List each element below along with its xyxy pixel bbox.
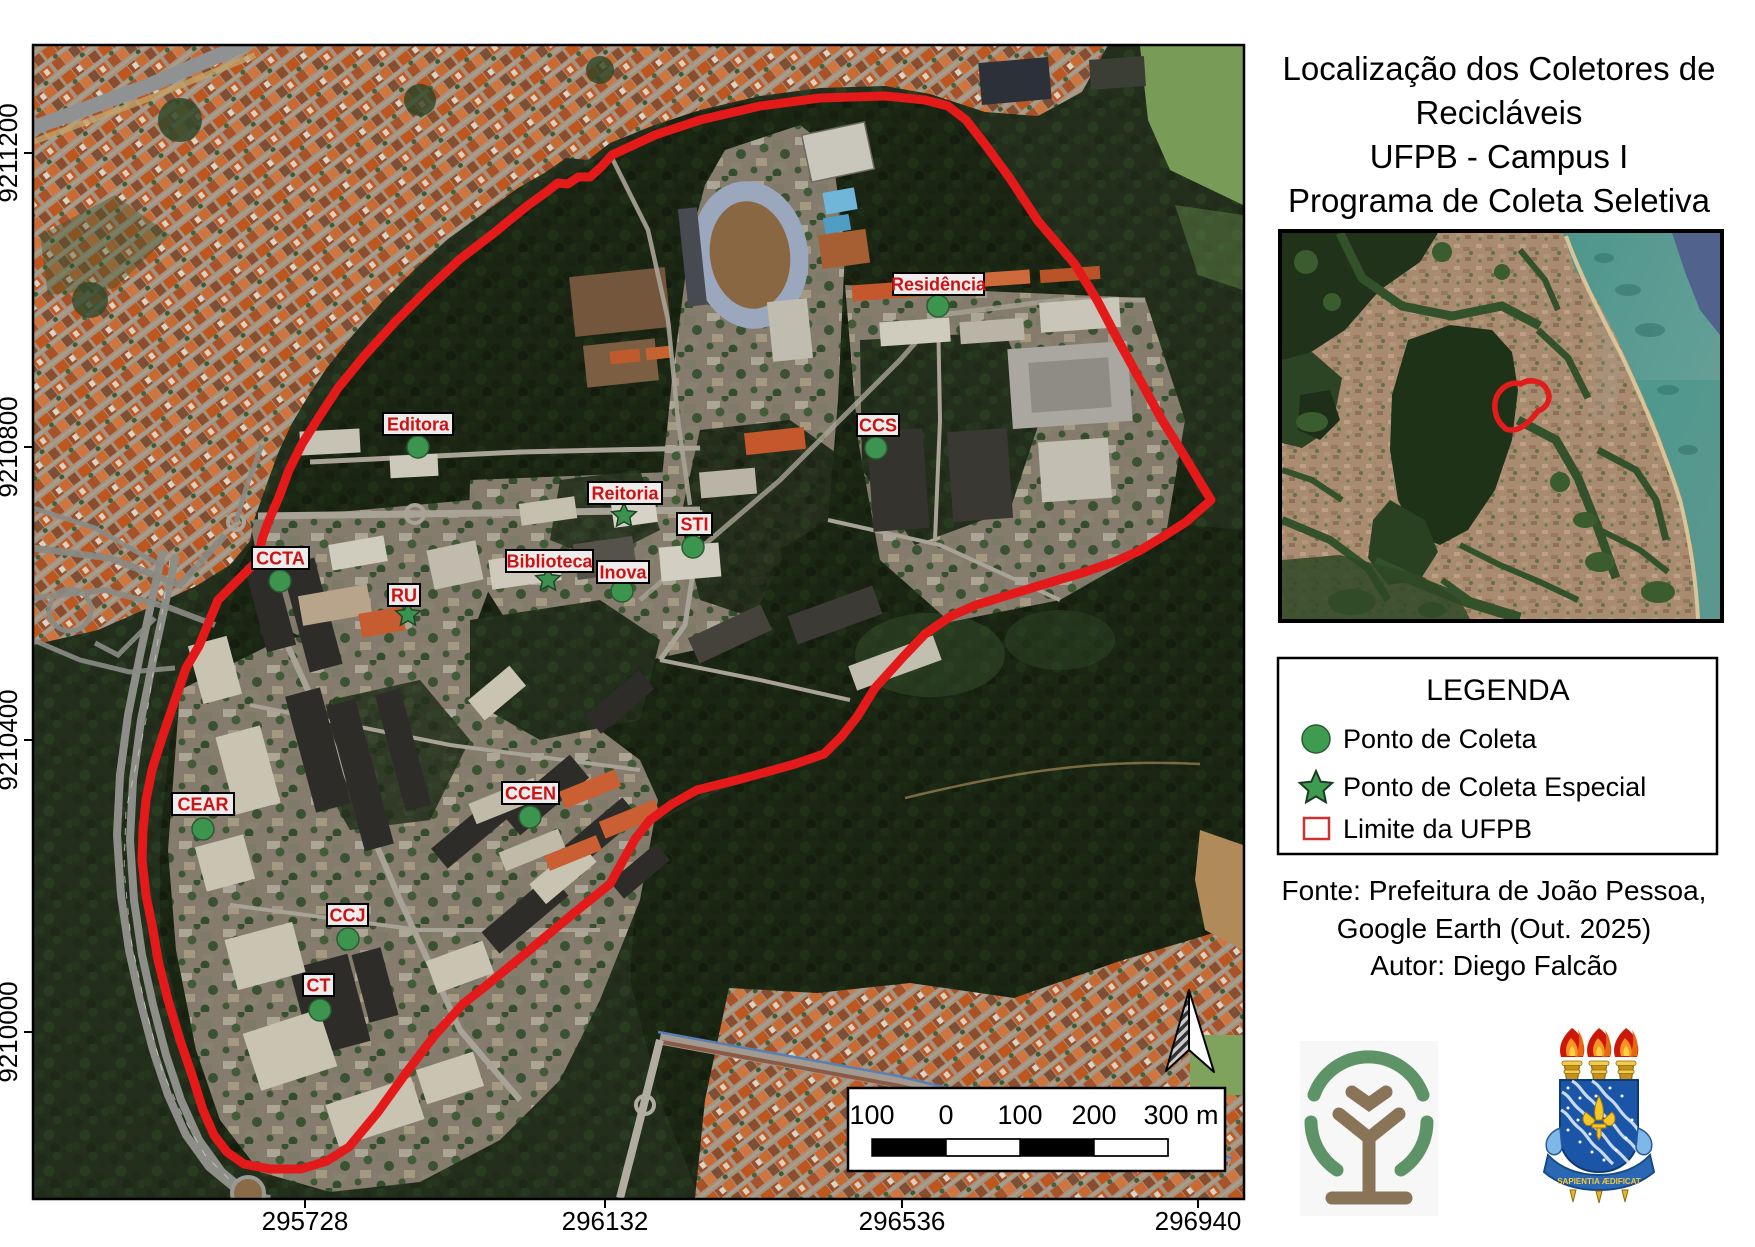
svg-text:200: 200	[1071, 1100, 1116, 1130]
svg-text:CCEN: CCEN	[505, 784, 556, 804]
svg-text:Inova: Inova	[599, 563, 647, 583]
svg-text:0: 0	[938, 1100, 953, 1130]
svg-text:CT: CT	[307, 976, 331, 996]
svg-text:9210400: 9210400	[0, 689, 23, 790]
svg-text:295728: 295728	[262, 1206, 349, 1236]
svg-text:Biblioteca: Biblioteca	[506, 552, 593, 572]
svg-text:Editora: Editora	[387, 415, 450, 435]
svg-text:296536: 296536	[859, 1206, 946, 1236]
svg-text:Residência: Residência	[891, 275, 987, 295]
svg-text:CCS: CCS	[859, 416, 897, 436]
svg-text:LEGENDA: LEGENDA	[1426, 674, 1569, 707]
svg-text:CCTA: CCTA	[256, 549, 305, 569]
svg-text:9210800: 9210800	[0, 396, 23, 497]
svg-text:CCJ: CCJ	[329, 906, 365, 926]
svg-text:9211200: 9211200	[0, 103, 23, 202]
svg-text:Reitoria: Reitoria	[591, 484, 659, 504]
svg-text:Limite da UFPB: Limite da UFPB	[1343, 814, 1532, 844]
svg-text:Localização dos Coletores de: Localização dos Coletores de	[1283, 50, 1716, 87]
svg-text:CEAR: CEAR	[177, 795, 228, 815]
svg-text:296132: 296132	[562, 1206, 649, 1236]
svg-text:296940: 296940	[1155, 1206, 1242, 1236]
svg-text:Fonte: Prefeitura de João Pess: Fonte: Prefeitura de João Pessoa,	[1282, 875, 1707, 906]
svg-text:SAPIENTIA ÆDIFICAT: SAPIENTIA ÆDIFICAT	[1557, 1177, 1641, 1186]
svg-text:UFPB - Campus I: UFPB - Campus I	[1370, 138, 1629, 175]
svg-text:RU: RU	[391, 586, 417, 606]
svg-text:Autor: Diego Falcão: Autor: Diego Falcão	[1370, 950, 1617, 981]
svg-text:100: 100	[849, 1100, 894, 1130]
svg-text:Programa de Coleta Seletiva: Programa de Coleta Seletiva	[1288, 182, 1711, 219]
svg-text:Recicláveis: Recicláveis	[1416, 94, 1583, 131]
svg-text:Google Earth (Out. 2025): Google Earth (Out. 2025)	[1337, 913, 1651, 944]
svg-text:9210000: 9210000	[0, 981, 23, 1082]
svg-text:STI: STI	[680, 515, 708, 535]
svg-text:100: 100	[997, 1100, 1042, 1130]
svg-text:Ponto de Coleta Especial: Ponto de Coleta Especial	[1343, 772, 1646, 802]
svg-text:Ponto de Coleta: Ponto de Coleta	[1343, 724, 1538, 754]
svg-text:300 m: 300 m	[1143, 1100, 1218, 1130]
